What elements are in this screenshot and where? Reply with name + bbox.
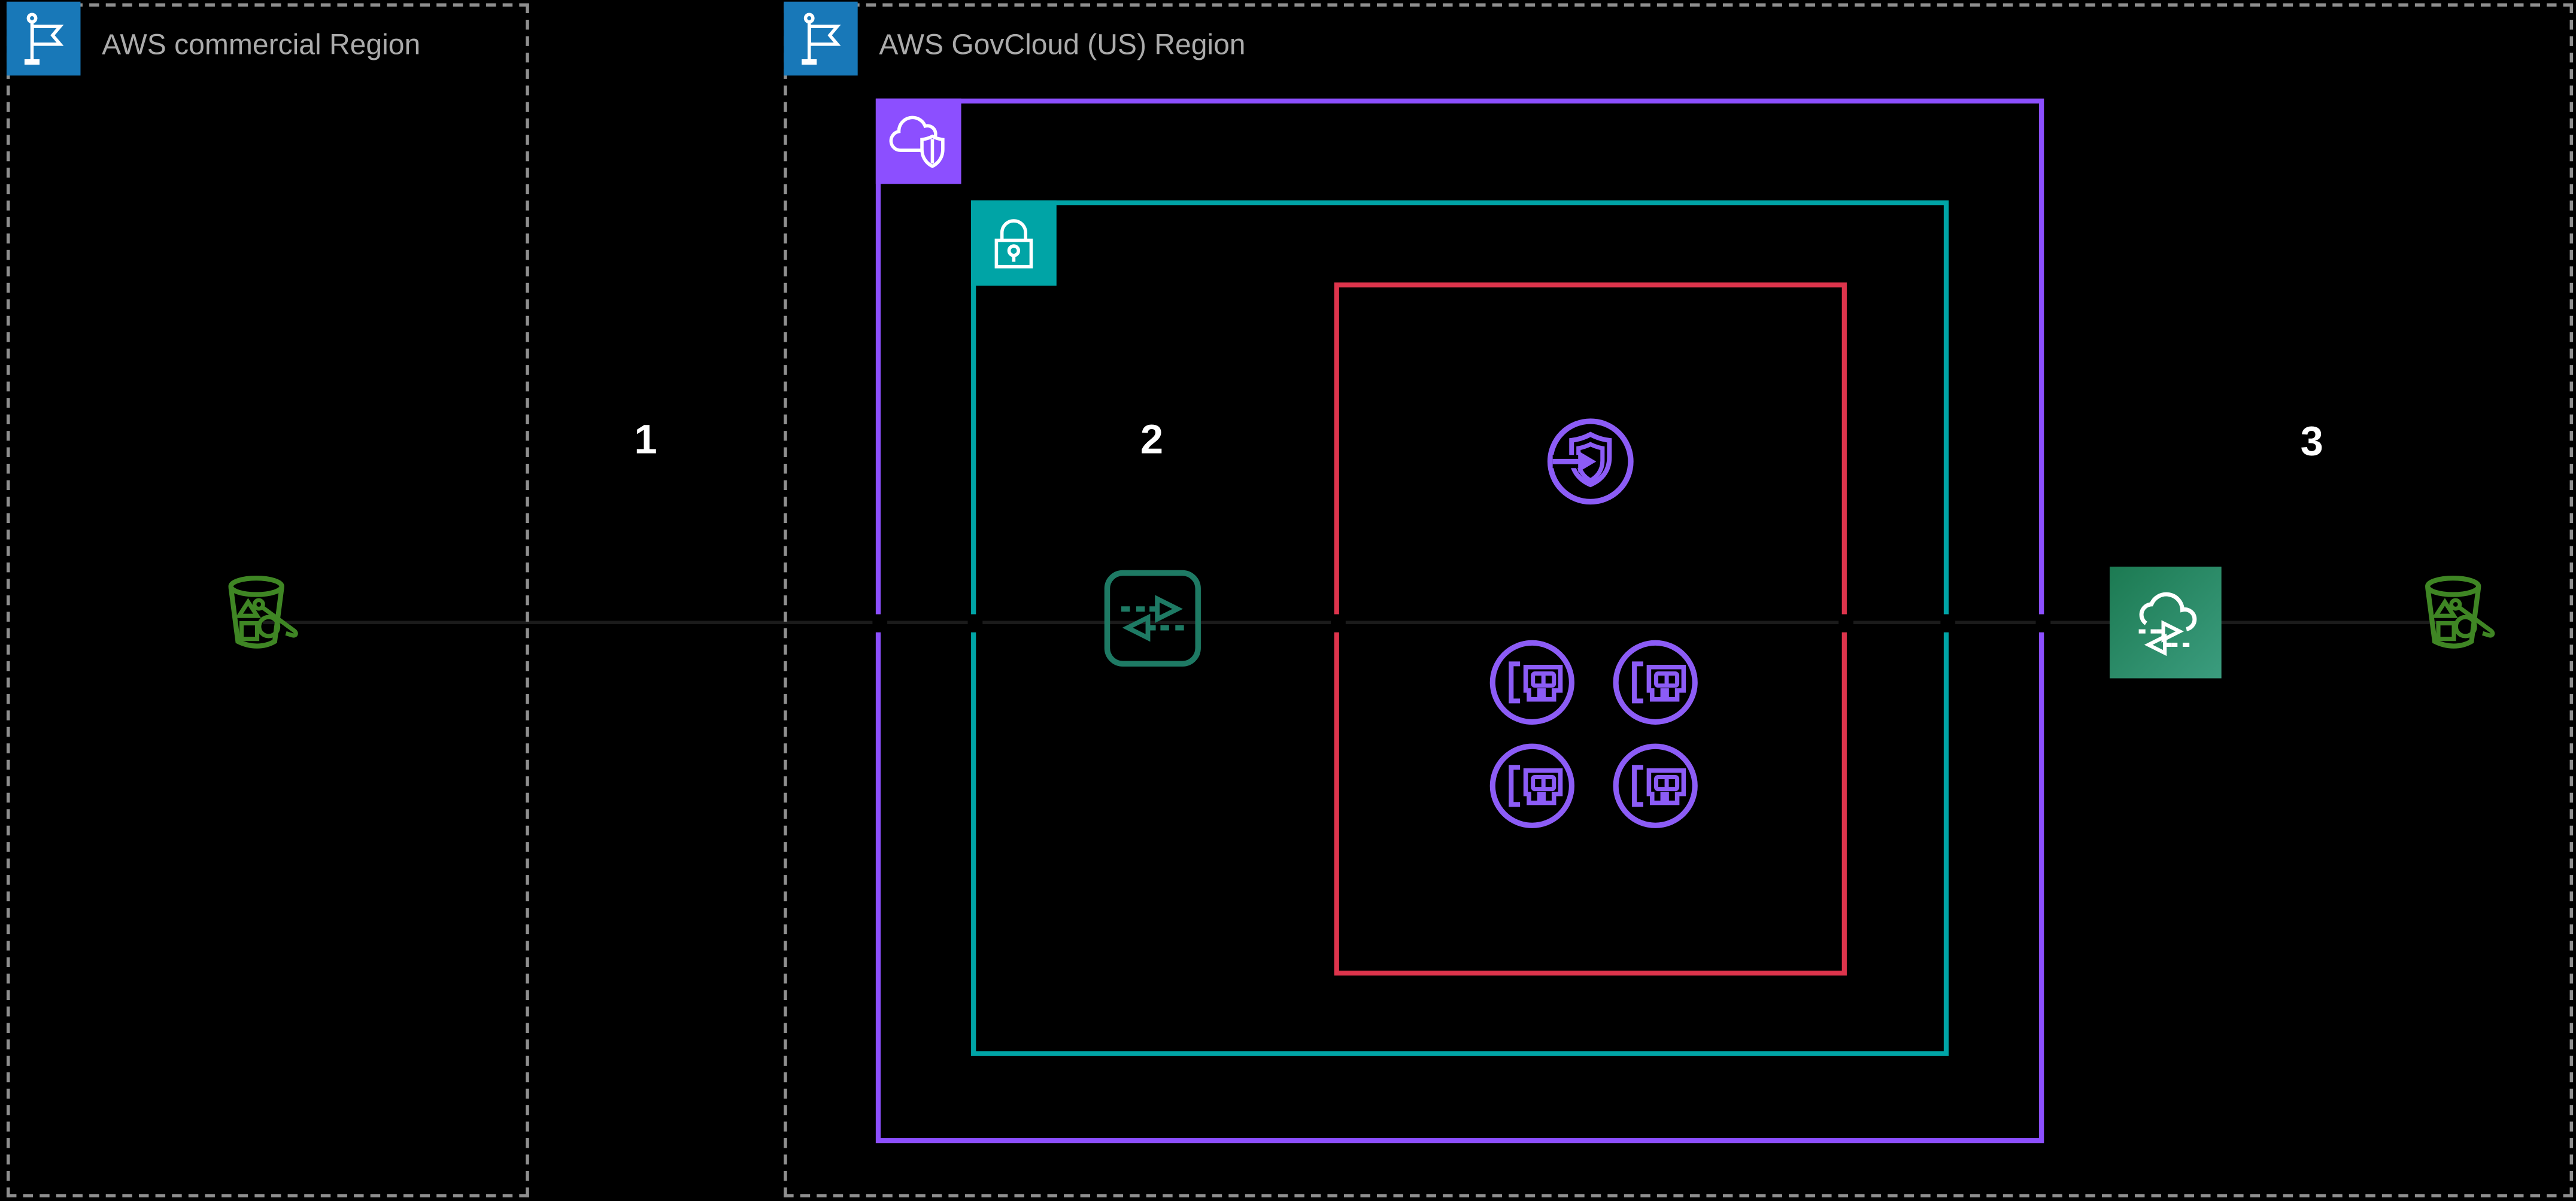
security-group-boundary: [1334, 282, 1847, 975]
elastic-network-interface-icon: [1487, 741, 1577, 831]
step-number-3: 3: [2287, 419, 2336, 467]
s3-bucket-icon: [2410, 571, 2502, 664]
border-gap: [968, 614, 983, 632]
architecture-diagram: AWS commercial Region 1 AWS GovCloud (US…: [0, 0, 2576, 1200]
border-gap: [1838, 614, 1853, 632]
step-number-2: 2: [1127, 417, 1176, 465]
border-gap: [872, 614, 887, 632]
border-gap: [2036, 614, 2051, 632]
s3-bucket-icon: [214, 571, 306, 664]
border-gap: [1940, 614, 1955, 632]
virtual-private-cloud-icon: [876, 99, 961, 184]
region-label: AWS GovCloud (US) Region: [879, 8, 1245, 83]
datasync-icon: [2110, 567, 2222, 679]
region-label: AWS commercial Region: [102, 8, 420, 83]
private-subnet-lock-icon: [971, 200, 1057, 286]
elastic-network-interface-icon: [1610, 637, 1701, 728]
datasync-agent-icon: [1103, 568, 1203, 668]
region-flag-icon: [7, 2, 81, 76]
vpc-endpoint-icon: [1545, 415, 1637, 507]
elastic-network-interface-icon: [1610, 741, 1701, 831]
step-number-1: 1: [621, 417, 670, 465]
region-flag-icon: [784, 2, 858, 76]
elastic-network-interface-icon: [1487, 637, 1577, 728]
border-gap: [1331, 614, 1346, 632]
